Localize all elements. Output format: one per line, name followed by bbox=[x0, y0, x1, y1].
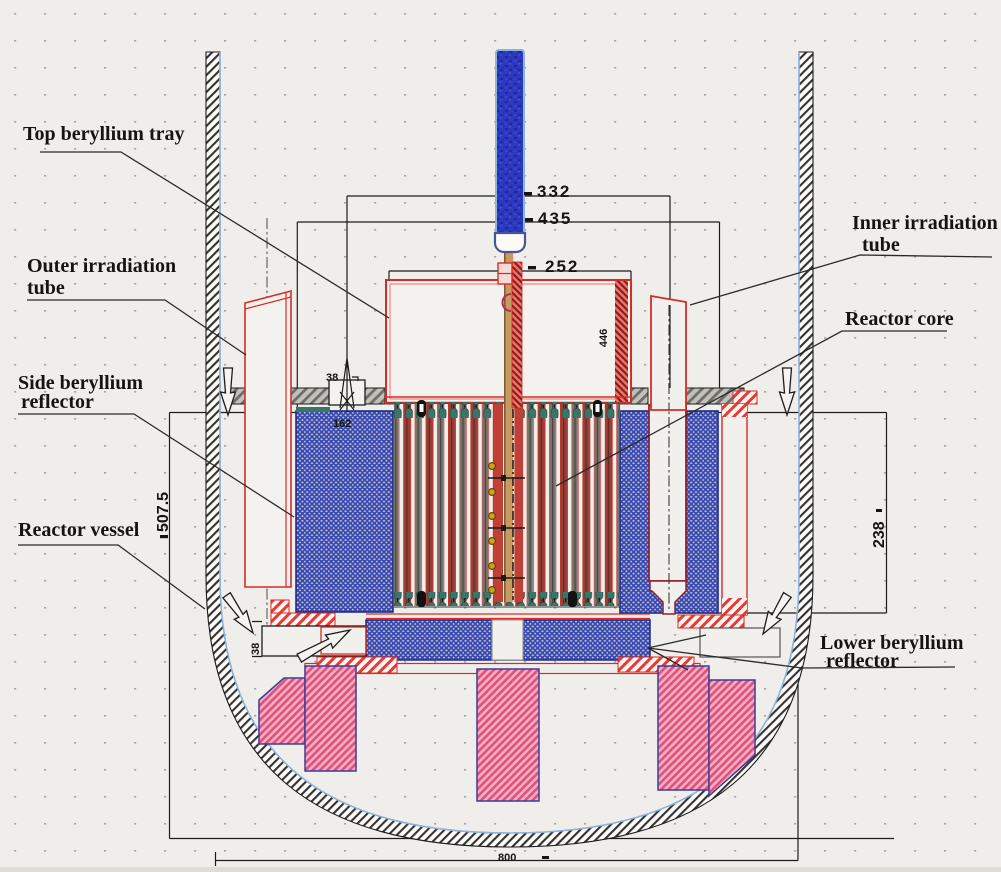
svg-text:38: 38 bbox=[326, 372, 338, 384]
svg-text:332: 332 bbox=[537, 182, 571, 201]
svg-text:Top beryllium tray: Top beryllium tray bbox=[23, 123, 185, 145]
svg-text:162: 162 bbox=[333, 418, 351, 430]
svg-text:800: 800 bbox=[498, 852, 516, 864]
svg-text:Reactor core: Reactor core bbox=[845, 308, 954, 330]
svg-text:507.5: 507.5 bbox=[155, 492, 172, 532]
svg-text:446: 446 bbox=[598, 329, 610, 347]
svg-text:Inner irradiation: Inner irradiation bbox=[852, 212, 998, 234]
svg-text:reflector: reflector bbox=[826, 650, 899, 672]
svg-text:435: 435 bbox=[538, 209, 572, 228]
svg-text:238: 238 bbox=[871, 521, 888, 548]
svg-text:Reactor vessel: Reactor vessel bbox=[18, 519, 140, 541]
svg-text:Outer irradiation: Outer irradiation bbox=[27, 255, 176, 277]
svg-text:tube: tube bbox=[862, 234, 900, 256]
svg-text:reflector: reflector bbox=[21, 391, 94, 413]
svg-text:38: 38 bbox=[250, 643, 262, 655]
svg-text:tube: tube bbox=[27, 277, 65, 299]
svg-text:252: 252 bbox=[545, 257, 579, 276]
